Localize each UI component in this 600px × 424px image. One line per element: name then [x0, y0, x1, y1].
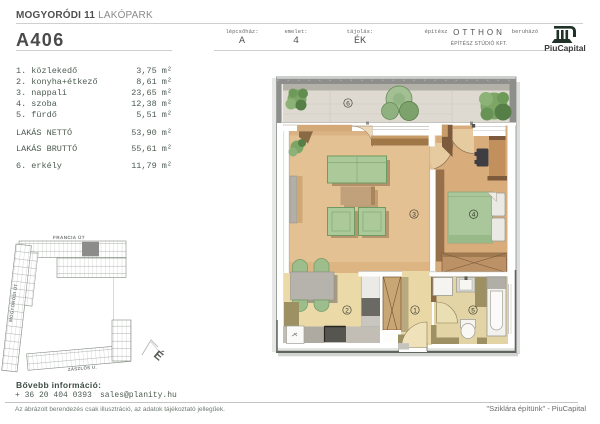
svg-text:1: 1 — [413, 307, 417, 314]
svg-text:3: 3 — [412, 211, 416, 218]
svg-text:5: 5 — [471, 307, 475, 314]
svg-text:6: 6 — [346, 100, 350, 107]
svg-text:2: 2 — [345, 307, 349, 314]
svg-text:4: 4 — [472, 212, 476, 219]
